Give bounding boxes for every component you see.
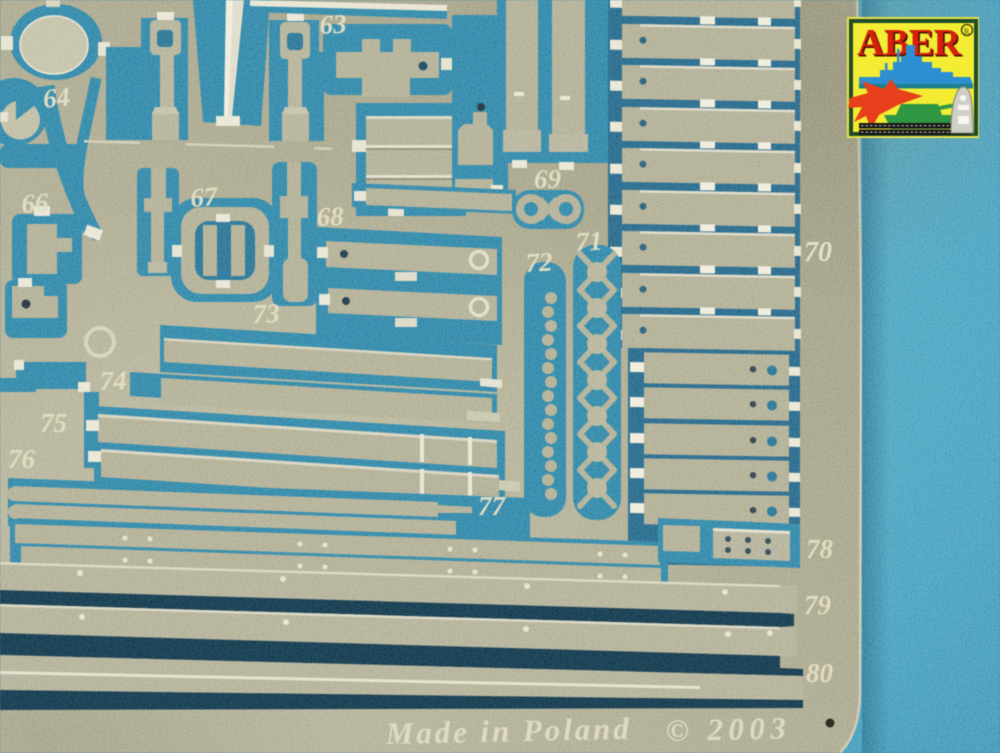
svg-text:78: 78 <box>806 534 834 564</box>
svg-text:74: 74 <box>99 365 127 396</box>
svg-text:73: 73 <box>252 298 280 329</box>
svg-text:68: 68 <box>316 201 345 232</box>
svg-text:79: 79 <box>804 590 832 620</box>
svg-text:64: 64 <box>41 81 71 114</box>
svg-text:76: 76 <box>8 444 36 474</box>
svg-text:77: 77 <box>478 491 507 521</box>
svg-text:67: 67 <box>189 181 220 213</box>
svg-text:R: R <box>964 27 970 36</box>
svg-text:69: 69 <box>534 164 562 194</box>
svg-text:75: 75 <box>40 408 67 438</box>
svg-text:66: 66 <box>20 187 50 219</box>
svg-text:71: 71 <box>575 226 604 257</box>
svg-text:Made in Poland: Made in Poland <box>384 711 629 751</box>
svg-text:80: 80 <box>806 658 834 688</box>
svg-text:63: 63 <box>319 9 348 40</box>
svg-text:70: 70 <box>804 237 832 268</box>
svg-text:72: 72 <box>525 247 554 278</box>
